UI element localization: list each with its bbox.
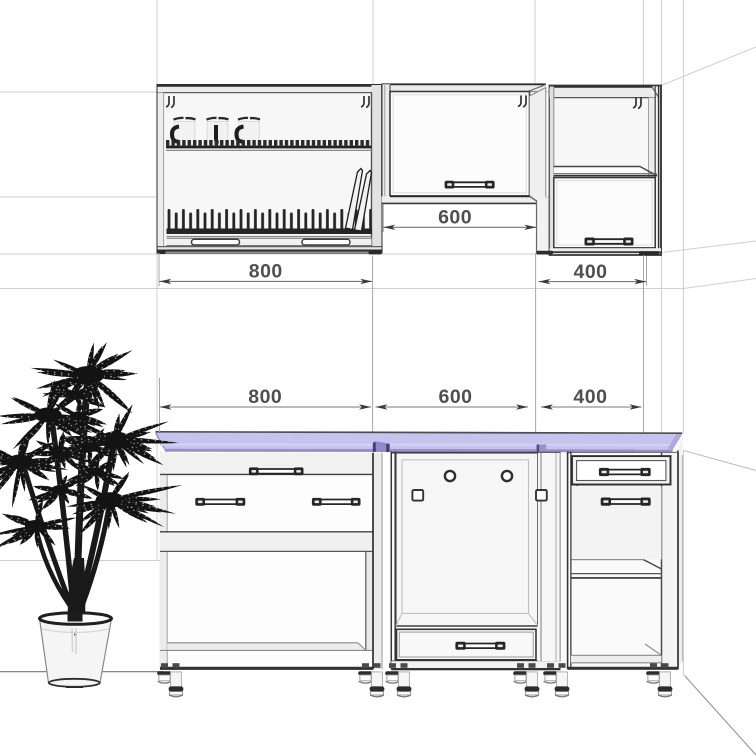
svg-text:800: 800 [248, 386, 282, 408]
svg-text:400: 400 [573, 261, 607, 283]
svg-text:600: 600 [438, 207, 472, 229]
svg-text:400: 400 [573, 386, 607, 408]
svg-text:600: 600 [438, 386, 472, 408]
svg-text:800: 800 [249, 261, 283, 283]
